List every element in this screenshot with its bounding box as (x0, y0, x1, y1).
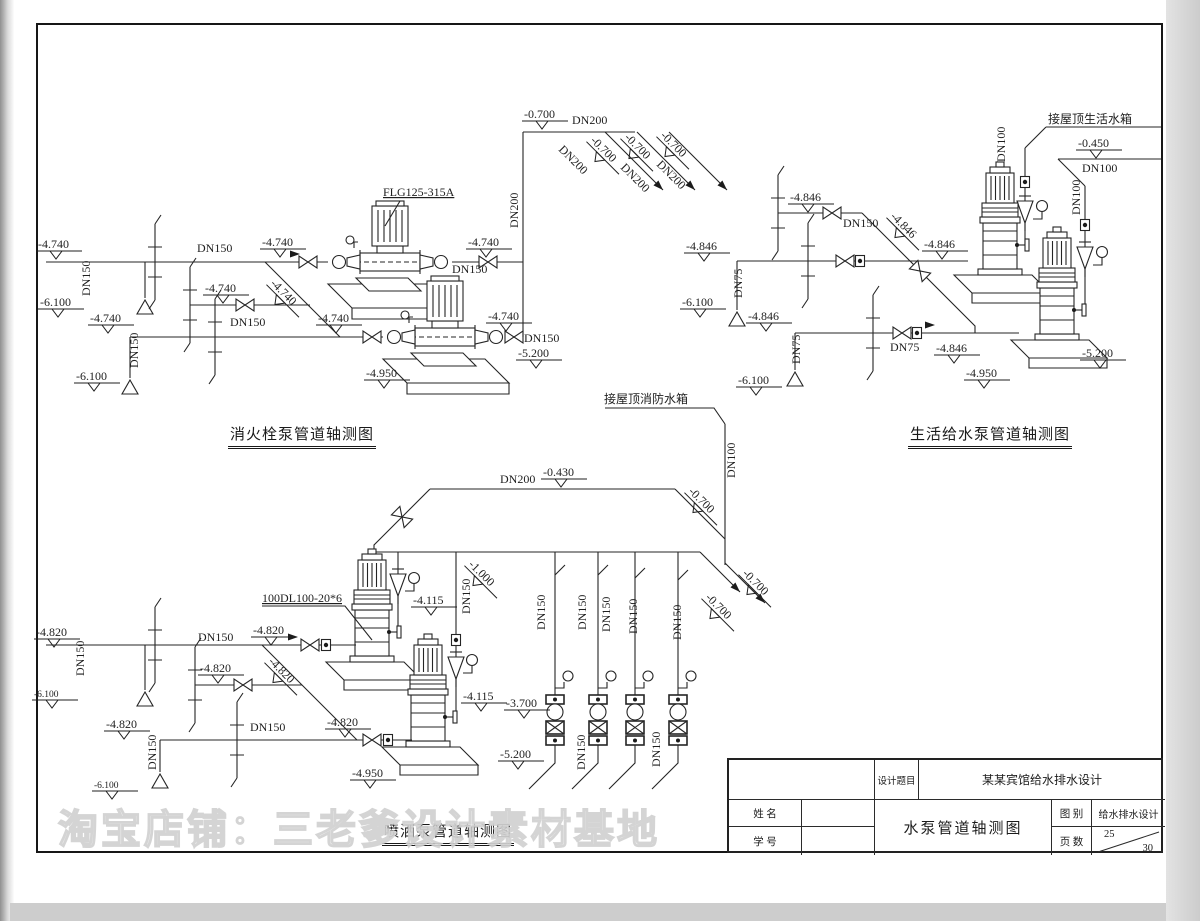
svg-text:-4.740: -4.740 (488, 309, 519, 323)
design-title-value: 某某宾馆给水排水设计 (919, 760, 1165, 800)
svg-text:-3.700: -3.700 (506, 696, 537, 710)
elevation-label: -4.740 (486, 309, 532, 331)
elevation-label: -0.450 (1076, 136, 1122, 158)
svg-text:DN150: DN150 (459, 579, 473, 614)
svg-text:DN75: DN75 (731, 269, 745, 298)
elevation-label: -6.100 (38, 295, 84, 317)
pipe-size-label: DN100 (724, 443, 738, 478)
pipe-size-label: DN150 (534, 595, 548, 630)
pipe-size-label: DN150 (459, 579, 473, 614)
svg-text:-4.820: -4.820 (327, 715, 358, 729)
svg-text:-6.100: -6.100 (682, 295, 713, 309)
pipe-size-label: DN150 (626, 599, 640, 634)
pipe-size-label: DN200 (507, 193, 521, 228)
pipe-size-label: DN75 (789, 335, 803, 364)
svg-text:DN150: DN150 (127, 333, 141, 368)
svg-text:-4.740: -4.740 (38, 237, 69, 251)
elevation-label: -6.100 (32, 690, 78, 708)
title-block-blank-cell (729, 760, 875, 800)
svg-text:DN75: DN75 (789, 335, 803, 364)
pipe-size-label: DN200 (556, 142, 591, 177)
elevation-label: -4.740 (203, 281, 249, 303)
elevation-label: -4.740 (36, 237, 82, 259)
elevation-label: -4.820 (325, 715, 371, 737)
svg-text:-4.740: -4.740 (205, 281, 236, 295)
pipe-size-label: DN100 (994, 127, 1008, 162)
svg-text:-4.950: -4.950 (352, 766, 383, 780)
annotation-layer: -4.740DN150-4.740-4.740DN150-6.100-4.740… (32, 107, 1132, 799)
page-total: 30 (1143, 843, 1154, 854)
elevation-label: -4.950 (350, 766, 396, 788)
drawing-title: 水泵管道轴测图 (875, 800, 1052, 855)
svg-text:-5.200: -5.200 (1082, 346, 1113, 360)
elevation-label: -4.846 (881, 208, 929, 256)
svg-text:DN100: DN100 (994, 127, 1008, 162)
pipe-size-label: DN150 (524, 331, 559, 345)
pipe-size-label: DN75 (890, 340, 919, 354)
svg-text:DN150: DN150 (230, 315, 265, 329)
svg-text:DN150: DN150 (145, 735, 159, 770)
svg-text:接屋顶消防水箱: 接屋顶消防水箱 (604, 391, 688, 406)
elevation-label: -4.820 (251, 623, 297, 645)
elevation-label: -4.950 (964, 366, 1010, 388)
elevation-label: -4.846 (788, 190, 834, 212)
svg-text:DN150: DN150 (574, 735, 588, 770)
elevation-label: -6.100 (74, 369, 120, 391)
svg-text:DN200: DN200 (556, 142, 591, 177)
elevation-label: -0.700 (522, 107, 568, 129)
pipe-size-label: DN75 (731, 269, 745, 298)
svg-text:-0.450: -0.450 (1078, 136, 1109, 150)
elevation-label: -0.430 (541, 465, 587, 487)
elevation-label: -0.700 (679, 483, 727, 531)
svg-text:-4.820: -4.820 (200, 661, 231, 675)
svg-text:DN200: DN200 (500, 472, 535, 486)
svg-text:DN100: DN100 (1069, 180, 1083, 215)
svg-text:-4.115: -4.115 (463, 689, 494, 703)
svg-text:DN200: DN200 (572, 113, 607, 127)
svg-text:接屋顶生活水箱: 接屋顶生活水箱 (1048, 111, 1132, 126)
svg-text:-5.200: -5.200 (518, 346, 549, 360)
pages-label: 页 数 (1052, 827, 1092, 855)
elevation-label: -5.200 (516, 346, 562, 368)
page-number: 25 (1104, 829, 1115, 840)
title-block: 设计题目 某某宾馆给水排水设计 姓 名 学 号 水泵管道轴测图 图 别 给水排水… (727, 758, 1163, 853)
svg-text:FLG125-315A: FLG125-315A (383, 185, 455, 199)
elevation-label: -6.100 (736, 373, 782, 395)
elevation-label: -6.100 (680, 295, 726, 317)
pipe-size-label: DN150 (197, 241, 232, 255)
svg-text:-0.700: -0.700 (524, 107, 555, 121)
pipe-size-label: DN150 (843, 216, 878, 230)
category-label: 图 别 (1052, 800, 1092, 827)
elevation-label: -3.700 (504, 696, 550, 718)
domestic-diagram-title: 生活给水泵管道轴测图 (908, 423, 1072, 449)
svg-text:-0.430: -0.430 (543, 465, 574, 479)
pipe-size-label: DN100 (1082, 161, 1117, 175)
svg-text:-5.200: -5.200 (500, 747, 531, 761)
svg-text:DN150: DN150 (626, 599, 640, 634)
elevation-label: -4.846 (746, 309, 792, 331)
svg-text:-4.846: -4.846 (924, 237, 955, 251)
svg-text:DN100: DN100 (1082, 161, 1117, 175)
pipe-size-label: DN150 (649, 732, 663, 767)
svg-text:-4.740: -4.740 (468, 235, 499, 249)
pipe-size-label: DN150 (670, 605, 684, 640)
pipe-size-label: DN150 (230, 315, 265, 329)
pipe-size-label: DN150 (73, 641, 87, 676)
name-value (802, 800, 875, 827)
category-value: 给水排水设计 (1092, 800, 1165, 827)
elevation-label: -4.846 (684, 239, 730, 261)
svg-text:-6.100: -6.100 (34, 690, 59, 700)
pipe-size-label: DN100 (1069, 180, 1083, 215)
svg-text:-4.846: -4.846 (936, 341, 967, 355)
elevation-label: -4.115 (461, 689, 507, 711)
pipe-size-label: DN150 (198, 630, 233, 644)
elevation-label: -0.700 (696, 589, 744, 637)
tank-label: 接屋顶生活水箱 (1048, 111, 1132, 126)
elevation-label: -4.740 (88, 311, 134, 333)
svg-text:DN150: DN150 (198, 630, 233, 644)
pump-model-label: 100DL100-20*6 (262, 591, 342, 605)
pipe-size-label: DN150 (599, 597, 613, 632)
svg-text:DN150: DN150 (575, 595, 589, 630)
pipe-size-label: DN150 (145, 735, 159, 770)
elevation-label: -4.115 (411, 593, 457, 615)
svg-text:DN150: DN150 (649, 732, 663, 767)
elevation-label: -4.846 (922, 237, 968, 259)
elevation-label: -4.740 (466, 235, 512, 257)
design-title-label: 设计题目 (875, 760, 919, 800)
svg-text:DN150: DN150 (250, 720, 285, 734)
svg-text:DN150: DN150 (73, 641, 87, 676)
svg-text:DN150: DN150 (670, 605, 684, 640)
elevation-label: -4.820 (104, 717, 150, 739)
pipe-size-label: DN150 (127, 333, 141, 368)
student-id-value (802, 827, 875, 855)
svg-text:DN150: DN150 (452, 262, 487, 276)
pipe-size-label: DN200 (500, 472, 535, 486)
pipe-size-label: DN150 (79, 261, 93, 296)
svg-text:-4.740: -4.740 (318, 311, 349, 325)
pipe-size-label: DN150 (250, 720, 285, 734)
svg-text:-4.820: -4.820 (36, 625, 67, 639)
watermark: 淘宝店铺：三老爹设计素材基地 (58, 797, 758, 855)
pipe-size-label: DN150 (575, 595, 589, 630)
svg-text:DN150: DN150 (79, 261, 93, 296)
svg-text:DN150: DN150 (197, 241, 232, 255)
spray-pump-2-icon (382, 634, 478, 775)
svg-text:DN100: DN100 (724, 443, 738, 478)
svg-text:-6.100: -6.100 (738, 373, 769, 387)
pump-model-label: FLG125-315A (383, 185, 455, 199)
svg-text:-4.820: -4.820 (253, 623, 284, 637)
svg-text:-6.100: -6.100 (94, 781, 119, 791)
svg-text:100DL100-20*6: 100DL100-20*6 (262, 591, 342, 605)
svg-text:-4.740: -4.740 (262, 235, 293, 249)
elevation-label: -4.820 (259, 653, 307, 701)
svg-text:DN150: DN150 (524, 331, 559, 345)
elevation-label: -4.846 (934, 341, 980, 363)
svg-text:DN150: DN150 (843, 216, 878, 230)
svg-text:-6.100: -6.100 (76, 369, 107, 383)
spray-pump-1-icon (326, 549, 422, 690)
elevation-label: -4.820 (198, 661, 244, 683)
drawing-page: -4.740DN150-4.740-4.740DN150-6.100-4.740… (0, 0, 1200, 921)
svg-text:-4.820: -4.820 (106, 717, 137, 731)
svg-text:-4.950: -4.950 (366, 366, 397, 380)
svg-text:DN200: DN200 (507, 193, 521, 228)
page-count-slash (1092, 827, 1165, 855)
svg-text:DN150: DN150 (599, 597, 613, 632)
page-count-cell: 25 30 (1092, 827, 1165, 855)
svg-text:DN150: DN150 (534, 595, 548, 630)
tank-label: 接屋顶消防水箱 (604, 391, 688, 406)
svg-text:-6.100: -6.100 (40, 295, 71, 309)
svg-text:-4.115: -4.115 (413, 593, 444, 607)
elevation-label: -0.700 (733, 565, 781, 613)
elevation-label: -5.200 (498, 747, 544, 769)
svg-text:-4.950: -4.950 (966, 366, 997, 380)
pipe-size-label: DN200 (572, 113, 607, 127)
svg-text:-4.846: -4.846 (790, 190, 821, 204)
svg-text:-4.846: -4.846 (686, 239, 717, 253)
domestic-pump-1-icon (954, 162, 1050, 303)
fire-diagram-title: 消火栓泵管道轴测图 (228, 423, 376, 449)
svg-text:DN75: DN75 (890, 340, 919, 354)
pipe-size-label: DN150 (452, 262, 487, 276)
svg-text:-4.846: -4.846 (748, 309, 779, 323)
pipe-size-label: DN150 (574, 735, 588, 770)
svg-text:-4.740: -4.740 (90, 311, 121, 325)
